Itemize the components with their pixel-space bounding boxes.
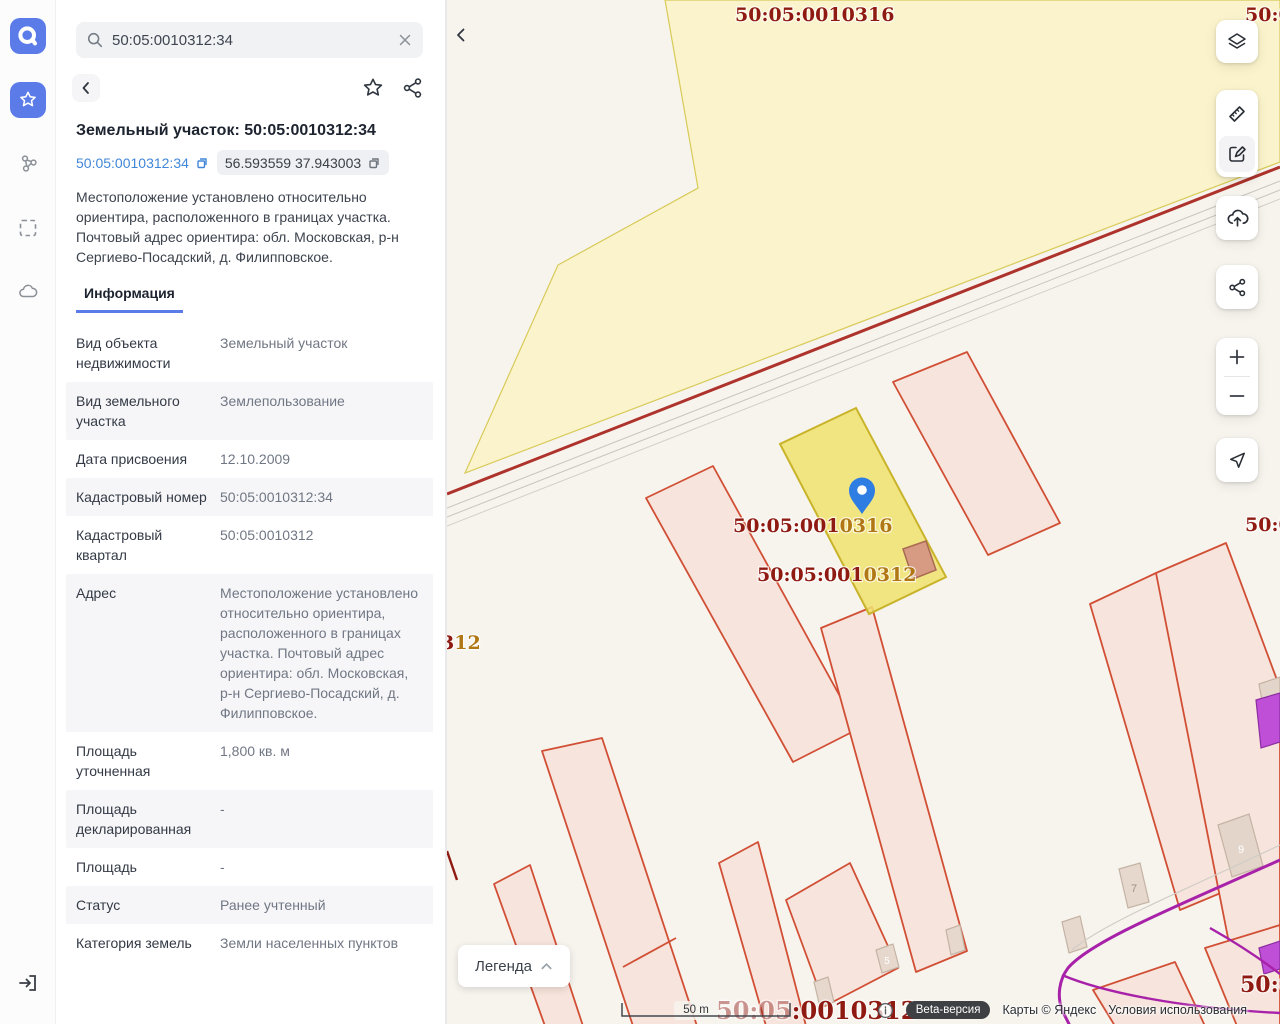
row-label: Вид земельного участка [76,391,208,431]
row-label: Вид объекта недвижимости [76,333,208,373]
row-value: - [220,857,423,877]
clear-search-icon[interactable] [397,32,413,48]
map-copyright-link[interactable]: Карты © Яндекс [1002,1003,1096,1017]
legend-label: Легенда [475,958,532,975]
share-nodes-icon [1226,276,1249,299]
table-row: Категория земель Земли населенных пункто… [66,924,433,962]
panel-collapse-button[interactable] [450,24,472,46]
login-icon [16,971,40,995]
dashed-select-icon [16,216,40,240]
favorite-button[interactable] [359,74,387,102]
row-label: Статус [76,895,208,915]
chevron-up-icon [540,960,553,973]
chips-row: 50:05:0010312:34 56.593559 37.943003 [76,150,433,175]
table-row: Вид объекта недвижимости Земельный участ… [66,324,433,382]
map-share-button[interactable] [1216,265,1258,309]
cloud-icon [16,280,40,304]
terms-of-use-link[interactable]: Условия использования [1108,1003,1247,1017]
table-row: Вид земельного участка Землепользование [66,382,433,440]
sidebar-item-favorites[interactable] [10,82,46,118]
search-bar[interactable] [76,22,423,58]
table-row: Площадь декларированная - [66,790,433,848]
app-logo[interactable] [10,18,46,54]
row-label: Кадастровый номер [76,487,208,507]
row-value: Земли населенных пунктов [220,933,423,953]
row-label: Адрес [76,583,208,723]
object-description: Местоположение установлено относительно … [76,187,433,267]
table-row: Адрес Местоположение установлено относит… [66,574,433,732]
sidebar-item-graph[interactable] [10,146,46,182]
zoom-in-button[interactable] [1216,338,1258,376]
quarter-label-right-mid: 50:0 [1245,514,1280,536]
page-title: Земельный участок: 50:05:0010312:34 [76,122,433,140]
star-outline-icon [361,76,385,100]
chevron-left-icon [453,27,469,43]
measure-edit-group [1216,90,1258,177]
row-value: 1,800 кв. м [220,741,423,781]
logo-a-icon [15,23,41,49]
map-pin-hole [857,485,867,495]
scale-label: 50 m [683,1004,709,1016]
attribution-bar: Beta-версия Карты © Яндекс Условия испол… [877,1001,1247,1019]
coordinates-text: 56.593559 37.943003 [225,155,361,171]
minus-icon [1227,386,1247,406]
row-label: Категория земель [76,933,208,953]
row-value: Земельный участок [220,333,423,373]
quarter-label-left-partial: 312 [447,632,481,654]
upload-button[interactable] [1216,196,1258,240]
attributes-table: Вид объекта недвижимости Земельный участ… [66,324,433,962]
table-row: Статус Ранее учтенный [66,886,433,924]
locate-me-button[interactable] [1216,438,1258,482]
table-row: Площадь - [66,848,433,886]
zoom-control [1216,338,1258,415]
row-label: Площадь уточненная [76,741,208,781]
sidebar-item-select-area[interactable] [10,210,46,246]
ruler-icon [1225,102,1249,126]
building-label-7: 7 [1131,883,1137,895]
share-nodes-icon [401,76,425,100]
parcel-label-0010312: 50:05:0010312 [757,564,916,586]
search-icon [86,31,104,49]
measure-button[interactable] [1216,94,1258,134]
info-icon[interactable] [877,1002,894,1019]
row-label: Кадастровый квартал [76,525,208,565]
cadastral-number-text: 50:05:0010312:34 [76,155,189,171]
layers-icon [1225,30,1249,54]
edit-pencil-icon [1225,142,1249,166]
zoom-out-button[interactable] [1216,377,1258,415]
copy-icon[interactable] [367,156,381,170]
row-value: 50:05:0010312 [220,525,423,565]
search-input[interactable] [112,32,397,49]
row-label: Площадь декларированная [76,799,208,839]
row-label: Площадь [76,857,208,877]
beta-badge: Beta-версия [906,1001,991,1019]
map-area: 7 9 5 50:05:0010316 50:0 50:05:0010316 5… [447,0,1280,1024]
table-row: Кадастровый номер 50:05:0010312:34 [66,478,433,516]
row-value: - [220,799,423,839]
table-row: Кадастровый квартал 50:05:0010312 [66,516,433,574]
navigation-arrow-icon [1226,449,1249,472]
tab-bar: Информация [76,285,433,314]
copy-icon[interactable] [195,156,209,170]
building-label-5: 5 [884,956,890,967]
legend-button[interactable]: Легенда [458,945,570,987]
row-value: Землепользование [220,391,423,431]
row-value: 50:05:0010312:34 [220,487,423,507]
building-label-9: 9 [1238,844,1244,856]
sidebar-item-login[interactable] [16,971,40,1000]
cloud-upload-icon [1225,206,1250,231]
table-row: Дата присвоения 12.10.2009 [66,440,433,478]
chevron-left-icon [78,80,94,96]
table-row: Площадь уточненная 1,800 кв. м [66,732,433,790]
share-button[interactable] [399,74,427,102]
star-icon [17,89,39,111]
detail-panel: Земельный участок: 50:05:0010312:34 50:0… [56,0,447,1024]
quarter-label-top: 50:05:0010316 [735,4,894,26]
row-value: Местоположение установлено относительно … [220,583,423,723]
draw-edit-button[interactable] [1219,136,1255,172]
quarter-label-bottom-right: 50:0 [1240,972,1280,998]
panel-header [72,74,427,102]
sidebar-rail [0,0,56,1024]
row-value: Ранее учтенный [220,895,423,915]
parcel-label-0010316: 50:05:0010316 [733,515,892,537]
building-magenta [1256,693,1280,748]
tab-information[interactable]: Информация [76,285,183,313]
layers-button[interactable] [1216,20,1258,63]
plus-icon [1227,347,1247,367]
map-canvas[interactable]: 7 9 5 50:05:0010316 50:0 50:05:0010316 5… [447,0,1280,1024]
back-button[interactable] [72,74,100,102]
row-label: Дата присвоения [76,449,208,469]
app-window: Земельный участок: 50:05:0010312:34 50:0… [0,0,1280,1024]
sidebar-item-cloud[interactable] [10,274,46,310]
cadastral-number-link[interactable]: 50:05:0010312:34 [76,155,209,171]
network-graph-icon [16,152,40,176]
coordinates-chip[interactable]: 56.593559 37.943003 [217,150,389,175]
row-value: 12.10.2009 [220,449,423,469]
